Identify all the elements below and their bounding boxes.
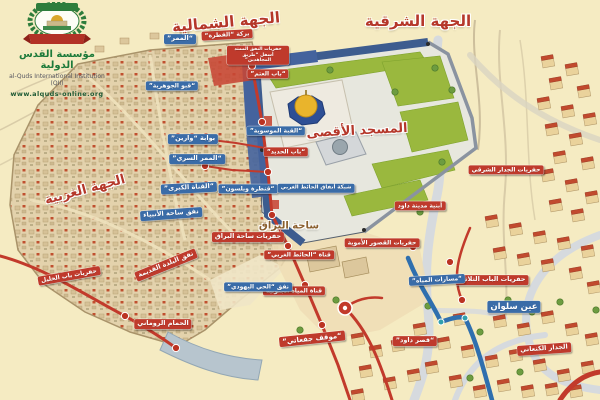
map-header-side-east: الجهة الشرقية — [365, 12, 471, 30]
map-label-buraq-plaza-excavations: حفريات ساحة البراق — [212, 232, 284, 242]
map-label-secret-passage: “الممر السري” — [169, 154, 225, 164]
map-label-jaffa-gate-excavations: حفريات باب الخليل — [37, 266, 100, 286]
map-header-buraq-plaza: ساحة البراق — [259, 221, 319, 232]
map-label-old-city-tunnel: نفق البلدة القديمة — [134, 248, 198, 281]
map-label-david-palace: “قصر داود” — [393, 336, 437, 346]
map-label-jewish-quarter-tunnel: نفق “الحي اليهودي” — [224, 282, 292, 291]
map-label-ein-silwan: عين سلوان — [487, 301, 540, 313]
map-label-al-mammar: “الممر” — [164, 34, 196, 44]
map-label-north-tunnel-excavation: حفريات النفق الممتد أسفل “طريق المجاهدين… — [227, 46, 289, 65]
map-label-bab-al-hadid: “باب الحديد” — [264, 147, 308, 156]
map-label-bab-al-atm: “باب العتم” — [247, 69, 288, 78]
map-label-warrens-gate: بوابة “وارين” — [168, 134, 218, 144]
map-label-roman-bath: الحمام الروماني — [134, 319, 191, 329]
labels-layer: بركة “القطرة”حفريات النفق الممتد أسفل “ط… — [0, 0, 600, 400]
map-label-western-wall-tunnels-network: شبكة أنفاق الحائط الغربي — [278, 184, 355, 193]
map-header-al-aqsa-mosque: المسجد الأقصى — [306, 121, 408, 141]
map-label-city-of-david-buildings: أبنية مدينة داود — [395, 201, 446, 210]
map-label-eastern-wall-excavations: حفريات الجدار الشرقي — [469, 165, 544, 174]
map-label-umayyad-palaces-excavations: حفريات القصور الأموية — [345, 238, 420, 247]
map-label-mosaic-dome: “القبة الموسوية” — [247, 126, 305, 135]
map-label-givati-parking: “موقف جفعاتي” — [279, 330, 345, 347]
map-label-jawhariyya-vault: “قبو الجوهرية” — [146, 81, 198, 90]
map-label-wilsons-arch: “قنطرة ويلسون” — [219, 184, 278, 193]
map-label-prophets-plaza-tunnel: نفق ساحة الأنبياء — [140, 207, 202, 221]
jerusalem-old-city-map: مؤسسة القدس الدولية al-Quds Internationa… — [0, 0, 600, 400]
map-header-side-west: الجهة الغربية — [43, 172, 127, 208]
map-label-great-channel: “القناة الكبرى” — [161, 182, 218, 195]
map-label-canaanite-wall: الجدار الكنعاني — [517, 342, 571, 356]
map-label-western-wall-channel: قناة “الحائط الغربي” — [264, 250, 334, 259]
map-label-triple-gate-excavations: حفريات الباب الثلاثي — [456, 275, 529, 285]
